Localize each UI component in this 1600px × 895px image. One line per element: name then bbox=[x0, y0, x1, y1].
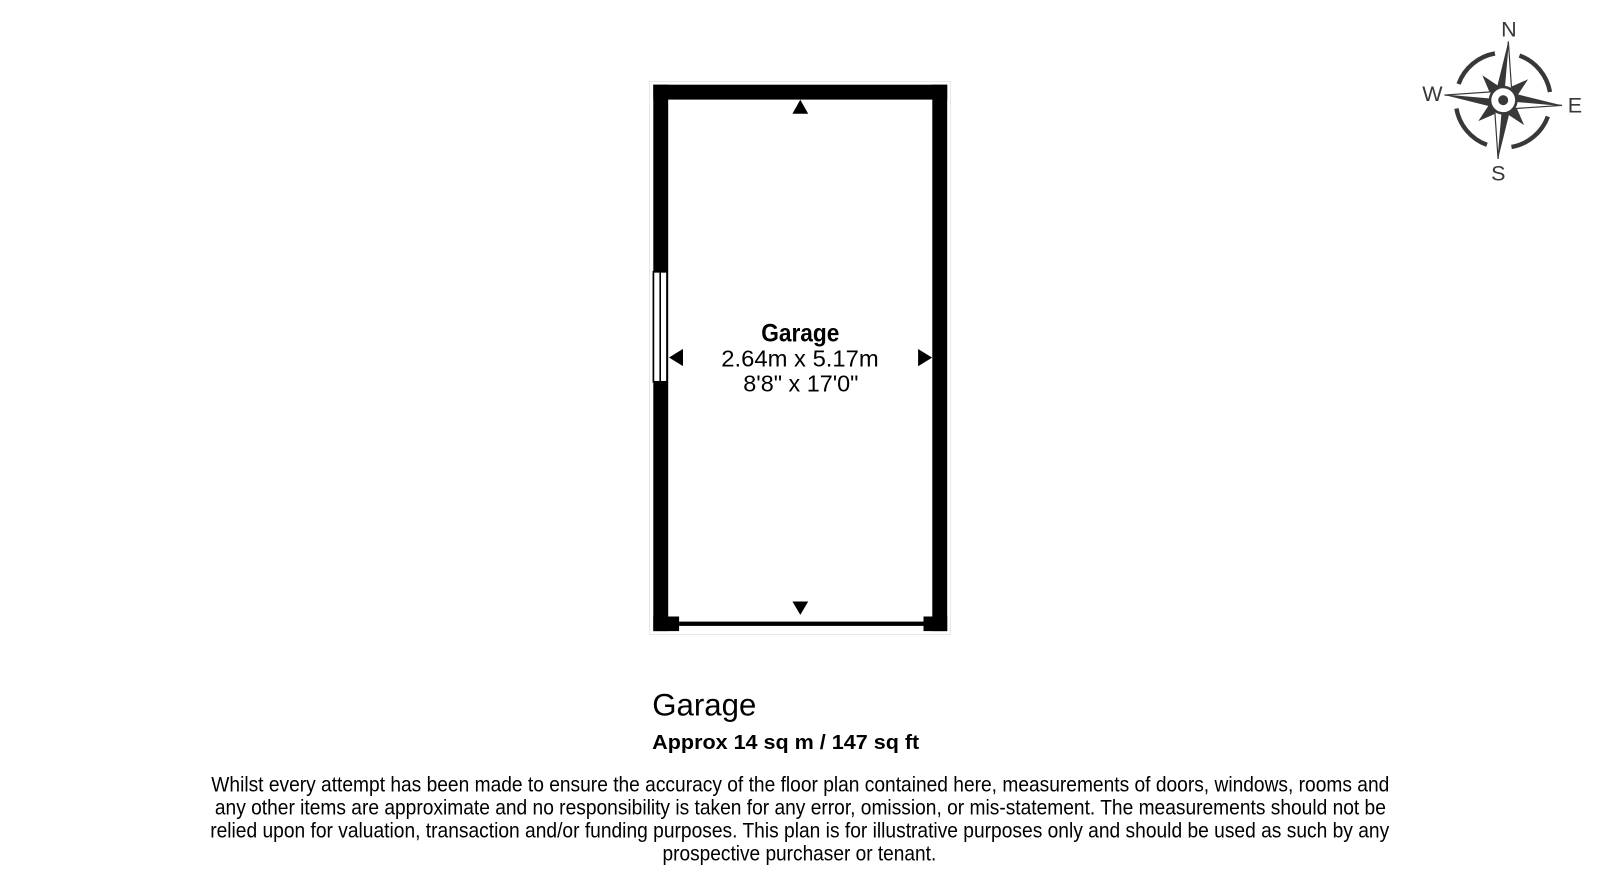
svg-text:N: N bbox=[1501, 18, 1517, 42]
svg-text:prospective purchaser or tenan: prospective purchaser or tenant. bbox=[663, 843, 937, 866]
svg-text:Approx 14 sq m / 147 sq ft: Approx 14 sq m / 147 sq ft bbox=[652, 731, 919, 754]
svg-text:W: W bbox=[1422, 82, 1443, 106]
svg-text:Garage: Garage bbox=[761, 319, 839, 347]
svg-text:2.64m x 5.17m: 2.64m x 5.17m bbox=[721, 346, 879, 372]
svg-text:S: S bbox=[1491, 161, 1505, 185]
svg-text:8'8" x 17'0": 8'8" x 17'0" bbox=[743, 370, 858, 396]
svg-text:relied upon for valuation, tra: relied upon for valuation, transaction a… bbox=[210, 820, 1389, 843]
svg-text:any other items are approximat: any other items are approximate and no r… bbox=[215, 797, 1386, 820]
svg-text:E: E bbox=[1568, 94, 1582, 118]
svg-text:Whilst every attempt has been: Whilst every attempt has been made to en… bbox=[211, 774, 1389, 797]
svg-text:Garage: Garage bbox=[652, 688, 756, 723]
